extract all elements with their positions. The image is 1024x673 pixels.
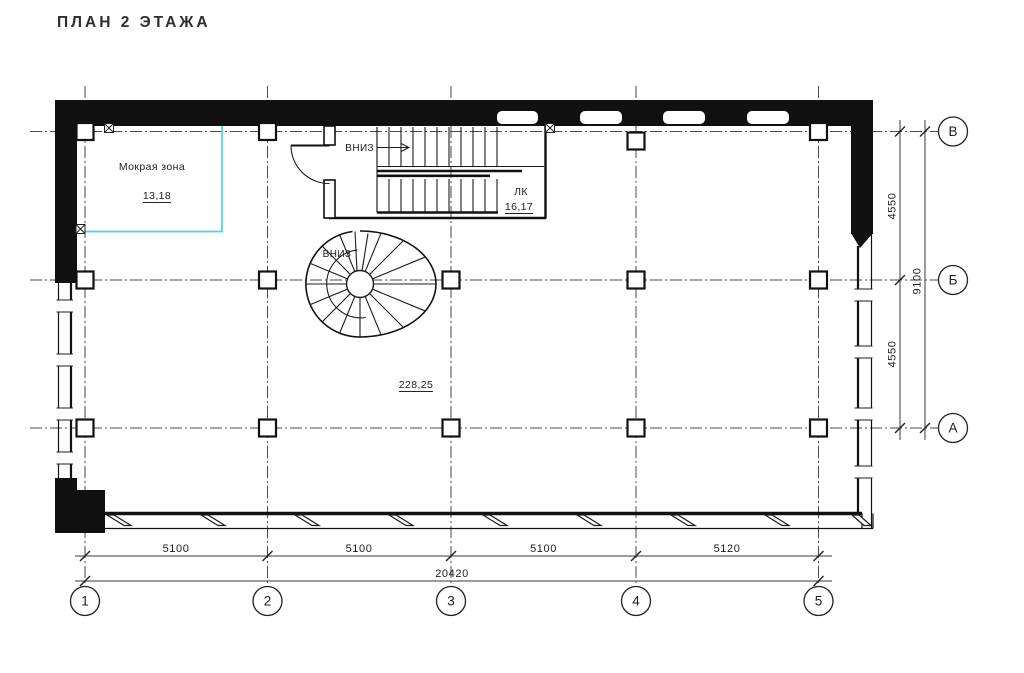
window-break xyxy=(57,300,74,313)
axis-label-1: 1 xyxy=(81,594,89,609)
facade-hatch xyxy=(107,515,131,526)
window-break xyxy=(57,452,74,465)
column-square xyxy=(628,272,645,289)
top-wall-window xyxy=(580,111,622,124)
fixture-marker xyxy=(76,225,85,234)
column-square xyxy=(77,123,94,140)
stairwell-left-wall-stub xyxy=(324,126,335,145)
door-swing-arc xyxy=(291,146,330,184)
dim-label-right-2: 4550 xyxy=(887,341,899,368)
dim-label-right-total: 9100 xyxy=(912,268,924,295)
stair-down-label: ВНИЗ xyxy=(345,143,374,154)
axis-label-3: 3 xyxy=(447,594,455,609)
window-break xyxy=(57,354,74,367)
column-square xyxy=(810,420,827,437)
floor-plan-svg: Мокрая зона 13,18 ВНИЗ ЛК 16,17 ВНИЗ 228… xyxy=(0,0,1024,673)
axis-label-4: 4 xyxy=(632,594,640,609)
stairwell-left-wall xyxy=(324,180,335,218)
column-square xyxy=(259,123,276,140)
column-square xyxy=(443,420,460,437)
facade-hatch xyxy=(483,515,507,526)
dim-label-right-1: 4550 xyxy=(887,193,899,220)
column-square xyxy=(628,133,645,150)
column-square xyxy=(810,272,827,289)
stairwell-area: 16,17 xyxy=(505,201,533,213)
staircases xyxy=(291,126,546,338)
left-wall-upper xyxy=(55,100,77,283)
spiral-stair-center-post xyxy=(347,271,374,298)
hall-area: 228,25 xyxy=(399,379,434,391)
window-break xyxy=(855,466,873,479)
facade-hatch xyxy=(852,515,871,526)
bottom-left-corner xyxy=(55,490,105,533)
axis-label-a: А xyxy=(948,421,957,436)
spiral-tread xyxy=(372,257,425,279)
column-square xyxy=(810,123,827,140)
top-wall-window xyxy=(497,111,538,124)
column-square xyxy=(443,272,460,289)
window-break xyxy=(855,408,873,421)
dim-label-bottom-2: 5100 xyxy=(346,543,373,555)
top-wall xyxy=(57,100,860,126)
window-break xyxy=(57,408,74,421)
facade-hatch xyxy=(765,515,789,526)
spiral-tread xyxy=(370,241,404,275)
axis-label-b: Б xyxy=(949,273,958,288)
window-break xyxy=(855,289,873,302)
dim-label-bottom-3: 5100 xyxy=(530,543,557,555)
facade-hatch xyxy=(295,515,319,526)
right-wall-upper xyxy=(851,100,873,234)
wet-zone-name: Мокрая зона xyxy=(119,161,185,173)
wet-zone-outline xyxy=(78,126,222,232)
floor-plan-canvas: ПЛАН 2 ЭТАЖА xyxy=(0,0,1024,673)
fixture-marker xyxy=(105,124,114,133)
axis-label-v: В xyxy=(948,124,957,139)
column-square xyxy=(259,272,276,289)
column-square xyxy=(77,272,94,289)
stairwell-name: ЛК xyxy=(514,186,528,198)
axis-label-2: 2 xyxy=(264,594,272,609)
spiral-stair-start-edge xyxy=(362,234,368,272)
facade-hatch xyxy=(577,515,601,526)
fixture-marker xyxy=(546,124,555,133)
wet-zone-area: 13,18 xyxy=(143,190,171,202)
spiral-tread xyxy=(372,289,425,311)
axis-label-5: 5 xyxy=(815,594,823,609)
spiral-down-label: ВНИЗ xyxy=(323,249,352,260)
spiral-tread xyxy=(370,294,404,328)
dim-label-bottom-total: 20420 xyxy=(435,568,469,580)
window-break xyxy=(855,346,873,359)
facade-hatch xyxy=(389,515,413,526)
column-square xyxy=(77,420,94,437)
spiral-stair-start-edge xyxy=(355,232,357,272)
facade-hatch xyxy=(201,515,225,526)
right-wall-taper xyxy=(851,233,873,248)
facade-hatch xyxy=(671,515,695,526)
column-square xyxy=(259,420,276,437)
dim-label-bottom-1: 5100 xyxy=(163,543,190,555)
top-wall-window xyxy=(663,111,705,124)
column-square xyxy=(628,420,645,437)
dim-label-bottom-4: 5120 xyxy=(714,543,741,555)
top-wall-window xyxy=(747,111,789,124)
